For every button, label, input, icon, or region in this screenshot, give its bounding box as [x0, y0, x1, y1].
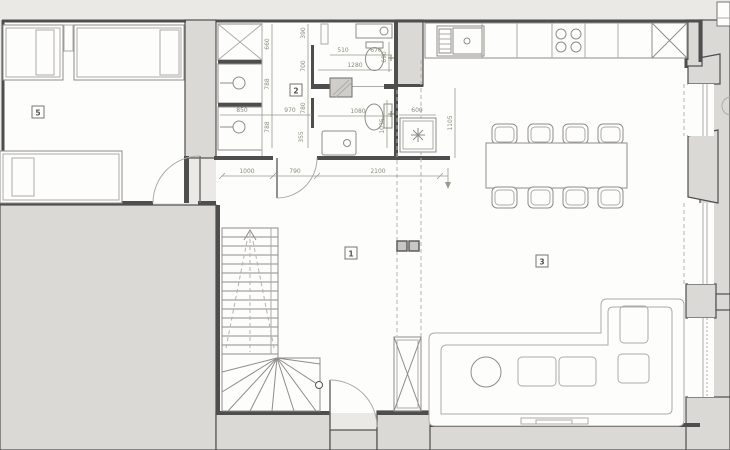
- column-marker: [397, 241, 407, 251]
- bed-top-right: [74, 25, 184, 80]
- stairs-bottom-wall: [216, 411, 330, 415]
- floor-plan-page: 1000 790 2100 660 788 788 850 970 390 70…: [0, 0, 730, 450]
- wc-partition-lower: [311, 98, 314, 128]
- window-mid-right: [688, 203, 714, 284]
- dim-label: 700: [300, 60, 307, 72]
- sliding-door-panel: [330, 78, 352, 97]
- room-number: 3: [539, 258, 544, 267]
- dim-label: 510: [337, 47, 349, 54]
- neighbor-structure-box: [717, 2, 730, 26]
- bath-wardrobe: [218, 24, 262, 60]
- wall-pier-windows: [688, 130, 718, 203]
- wc-door-leaf: [321, 24, 328, 44]
- dim-label: 2100: [370, 168, 385, 175]
- dim-label: 1105: [447, 115, 454, 130]
- bedroom-right-wall: [184, 156, 189, 203]
- dim-label: 690: [381, 51, 388, 63]
- room-label-living: 3: [536, 255, 548, 267]
- floor-plan-canvas: 1000 790 2100 660 788 788 850 970 390 70…: [0, 0, 730, 450]
- wc-bottom-basin: [322, 131, 356, 155]
- dim-label: 780: [300, 102, 307, 114]
- dim-label: 970: [284, 107, 296, 114]
- dining-table: [486, 143, 627, 188]
- dining-chair: [492, 124, 517, 144]
- pillow: [36, 30, 54, 75]
- dim-label: 788: [264, 121, 271, 133]
- newel-post: [316, 382, 323, 389]
- wall-block-door-sill: [330, 430, 377, 450]
- bath-bottom-wall-left: [214, 156, 273, 160]
- dim-label: 1280: [347, 62, 362, 69]
- pillow: [12, 158, 34, 196]
- bed-top-left: [3, 25, 63, 80]
- column-marker: [409, 241, 419, 251]
- bath-partition-1: [218, 60, 262, 64]
- room-label-hall: 1: [345, 247, 357, 259]
- floor-drain-area: [400, 118, 436, 152]
- drain-star-icon: [411, 128, 425, 142]
- wall-shaft-bedroom-bath: [185, 20, 216, 158]
- wall-arm-mid-right: [716, 294, 730, 310]
- window-bottom-right: [688, 318, 714, 397]
- dim-label: 1000: [239, 168, 254, 175]
- dim-label: 1035: [379, 118, 386, 133]
- bed-bottom: [0, 151, 122, 203]
- wc-partition-upper: [311, 45, 314, 85]
- dining-chair: [598, 124, 623, 144]
- dining-chair: [528, 187, 553, 208]
- wall-stub-mid-right: [686, 284, 716, 318]
- wall-block-bottom-right: [430, 425, 730, 450]
- dim-label: 850: [236, 107, 248, 114]
- room-number: 5: [35, 109, 40, 118]
- bath-bottom-wall-right: [317, 156, 450, 160]
- dim-label: 790: [289, 168, 301, 175]
- dim-label: 660: [264, 38, 271, 50]
- dim-label: 355: [298, 131, 305, 143]
- dim-label: 788: [264, 78, 271, 90]
- stairs-left-wall: [216, 205, 220, 413]
- nightstand: [64, 25, 73, 51]
- dining-chair: [528, 124, 553, 144]
- dim-label: 1080: [350, 108, 365, 115]
- wall-block-bottom-left: [0, 205, 216, 450]
- dim-label: 600: [411, 107, 423, 114]
- dining-chair: [563, 187, 588, 208]
- room-label-bathroom: 2: [290, 84, 302, 96]
- room-label-bedroom: 5: [32, 106, 44, 118]
- dining-chair: [563, 124, 588, 144]
- room-number: 1: [348, 250, 353, 259]
- wall-shaft-bath-kitchen: [396, 20, 423, 86]
- dining-chair: [598, 187, 623, 208]
- room-number: 2: [293, 87, 298, 96]
- pillow: [160, 30, 179, 75]
- wall-block-under-stairs: [216, 413, 330, 450]
- dining-chair: [492, 187, 517, 208]
- washbasin-counter-1: [218, 64, 262, 103]
- shaft-bottom-wall: [396, 84, 423, 87]
- dim-label: 390: [300, 27, 307, 39]
- wc-top-basin: [356, 24, 392, 38]
